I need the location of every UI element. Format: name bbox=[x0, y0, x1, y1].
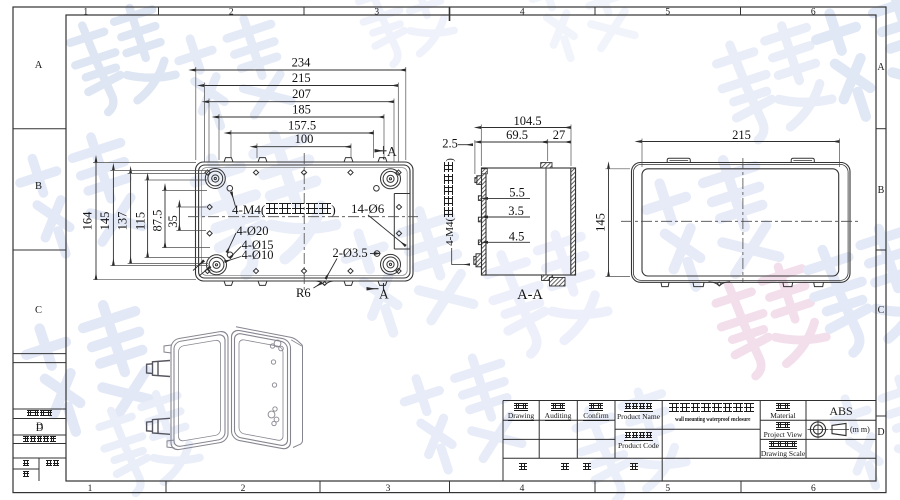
svg-text:2: 2 bbox=[229, 8, 234, 18]
svg-text:215: 215 bbox=[732, 128, 751, 142]
svg-text:B: B bbox=[878, 185, 885, 196]
svg-text:234: 234 bbox=[292, 56, 312, 70]
svg-text:1: 1 bbox=[88, 484, 93, 494]
svg-text:R6: R6 bbox=[296, 286, 311, 300]
svg-text:100: 100 bbox=[295, 132, 314, 146]
svg-text:1: 1 bbox=[83, 8, 88, 18]
svg-text:3.5: 3.5 bbox=[508, 204, 524, 218]
svg-text:69.5: 69.5 bbox=[506, 128, 528, 142]
svg-text:A: A bbox=[379, 287, 389, 302]
svg-text:35: 35 bbox=[166, 215, 180, 228]
svg-text:4: 4 bbox=[520, 484, 525, 494]
svg-text:A: A bbox=[35, 60, 43, 71]
svg-text:27: 27 bbox=[553, 128, 566, 142]
svg-text:145: 145 bbox=[594, 213, 608, 232]
svg-text:115: 115 bbox=[134, 212, 148, 230]
svg-text:87.5: 87.5 bbox=[151, 210, 165, 232]
svg-text:4.5: 4.5 bbox=[509, 229, 525, 243]
svg-text:145: 145 bbox=[98, 212, 112, 231]
svg-text:A-A: A-A bbox=[517, 287, 543, 303]
svg-text:3: 3 bbox=[374, 8, 379, 18]
svg-text:6: 6 bbox=[811, 8, 816, 18]
svg-text:215: 215 bbox=[292, 71, 311, 85]
svg-text:2: 2 bbox=[241, 484, 246, 494]
svg-text:157.5: 157.5 bbox=[288, 119, 316, 133]
svg-text:3: 3 bbox=[386, 484, 391, 494]
svg-text:C: C bbox=[35, 305, 42, 316]
svg-text:A: A bbox=[877, 62, 885, 73]
svg-text:B: B bbox=[35, 181, 42, 192]
svg-text:164: 164 bbox=[81, 211, 95, 231]
svg-text:C: C bbox=[878, 305, 885, 316]
svg-text:137: 137 bbox=[115, 212, 129, 231]
svg-text:A: A bbox=[387, 144, 397, 159]
svg-text:D: D bbox=[877, 427, 884, 438]
svg-text:5.5: 5.5 bbox=[509, 185, 525, 199]
svg-text:2.5: 2.5 bbox=[442, 137, 458, 151]
svg-text:185: 185 bbox=[292, 103, 311, 117]
svg-text:5: 5 bbox=[665, 8, 670, 18]
svg-text:104.5: 104.5 bbox=[513, 114, 541, 128]
svg-text:4: 4 bbox=[520, 8, 525, 18]
svg-text:5: 5 bbox=[665, 484, 670, 494]
svg-text:6: 6 bbox=[811, 484, 816, 494]
svg-text:207: 207 bbox=[292, 87, 311, 101]
